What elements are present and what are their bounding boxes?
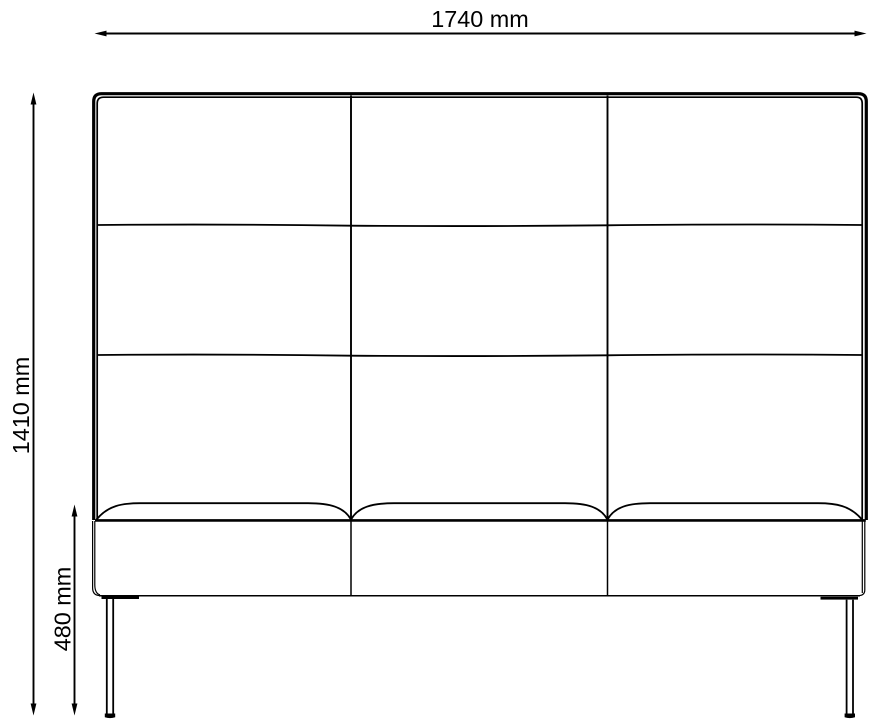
svg-text:1410 mm: 1410 mm — [8, 357, 34, 455]
svg-text:1740 mm: 1740 mm — [431, 6, 529, 32]
svg-text:480 mm: 480 mm — [49, 567, 75, 652]
